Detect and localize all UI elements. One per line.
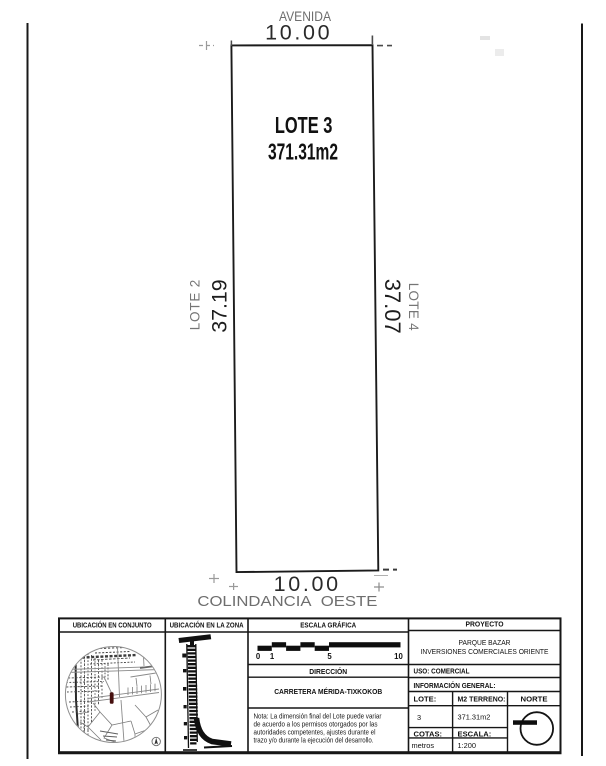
svg-text:COLINDANCIA OESTE: COLINDANCIA OESTE — [197, 594, 377, 610]
svg-text:0: 0 — [256, 652, 261, 661]
svg-text:INVERSIONES COMERCIALES ORIENT: INVERSIONES COMERCIALES ORIENTE — [421, 647, 549, 656]
svg-text:ESCALA:: ESCALA: — [458, 729, 492, 738]
svg-text:PARQUE BAZAR: PARQUE BAZAR — [459, 638, 511, 647]
svg-text:10: 10 — [394, 652, 403, 661]
svg-text:3: 3 — [417, 713, 421, 722]
svg-text:DIRECCIÓN: DIRECCIÓN — [309, 667, 347, 676]
svg-text:USO: COMERCIAL: USO: COMERCIAL — [414, 667, 470, 676]
svg-text:NORTE: NORTE — [521, 695, 548, 704]
svg-text:5: 5 — [327, 652, 332, 661]
svg-text:37.19: 37.19 — [207, 279, 231, 333]
svg-text:1: 1 — [270, 652, 275, 661]
svg-text:LOTE 4: LOTE 4 — [406, 283, 421, 331]
svg-text:trazo y/o durante la ejecución: trazo y/o durante la ejecución del desar… — [254, 736, 374, 745]
svg-text:M2 TERRENO:: M2 TERRENO: — [458, 695, 506, 704]
svg-text:LOTE 3: LOTE 3 — [275, 112, 333, 138]
svg-text:COTAS:: COTAS: — [414, 729, 443, 738]
svg-text:UBICACIÓN EN CONJUNTO: UBICACIÓN EN CONJUNTO — [73, 621, 152, 630]
svg-text:37.07: 37.07 — [380, 279, 405, 334]
svg-text:ESCALA GRÁFICA: ESCALA GRÁFICA — [300, 621, 356, 630]
svg-text:LOTE 2: LOTE 2 — [188, 280, 203, 331]
svg-text:1:200: 1:200 — [458, 741, 477, 750]
svg-text:10.00: 10.00 — [274, 572, 339, 596]
svg-text:UBICACIÓN EN LA ZONA: UBICACIÓN EN LA ZONA — [170, 621, 244, 630]
svg-text:371.31m2: 371.31m2 — [268, 139, 338, 165]
svg-text:10.00: 10.00 — [265, 20, 330, 44]
svg-text:LOTE:: LOTE: — [414, 695, 437, 704]
svg-text:PROYECTO: PROYECTO — [466, 620, 504, 629]
svg-text:CARRETERA MÉRIDA-TIXKOKOB: CARRETERA MÉRIDA-TIXKOKOB — [274, 687, 382, 696]
svg-text:371.31m2: 371.31m2 — [458, 713, 491, 722]
svg-text:metros: metros — [412, 741, 435, 750]
svg-text:INFORMACIÓN GENERAL:: INFORMACIÓN GENERAL: — [414, 681, 496, 690]
